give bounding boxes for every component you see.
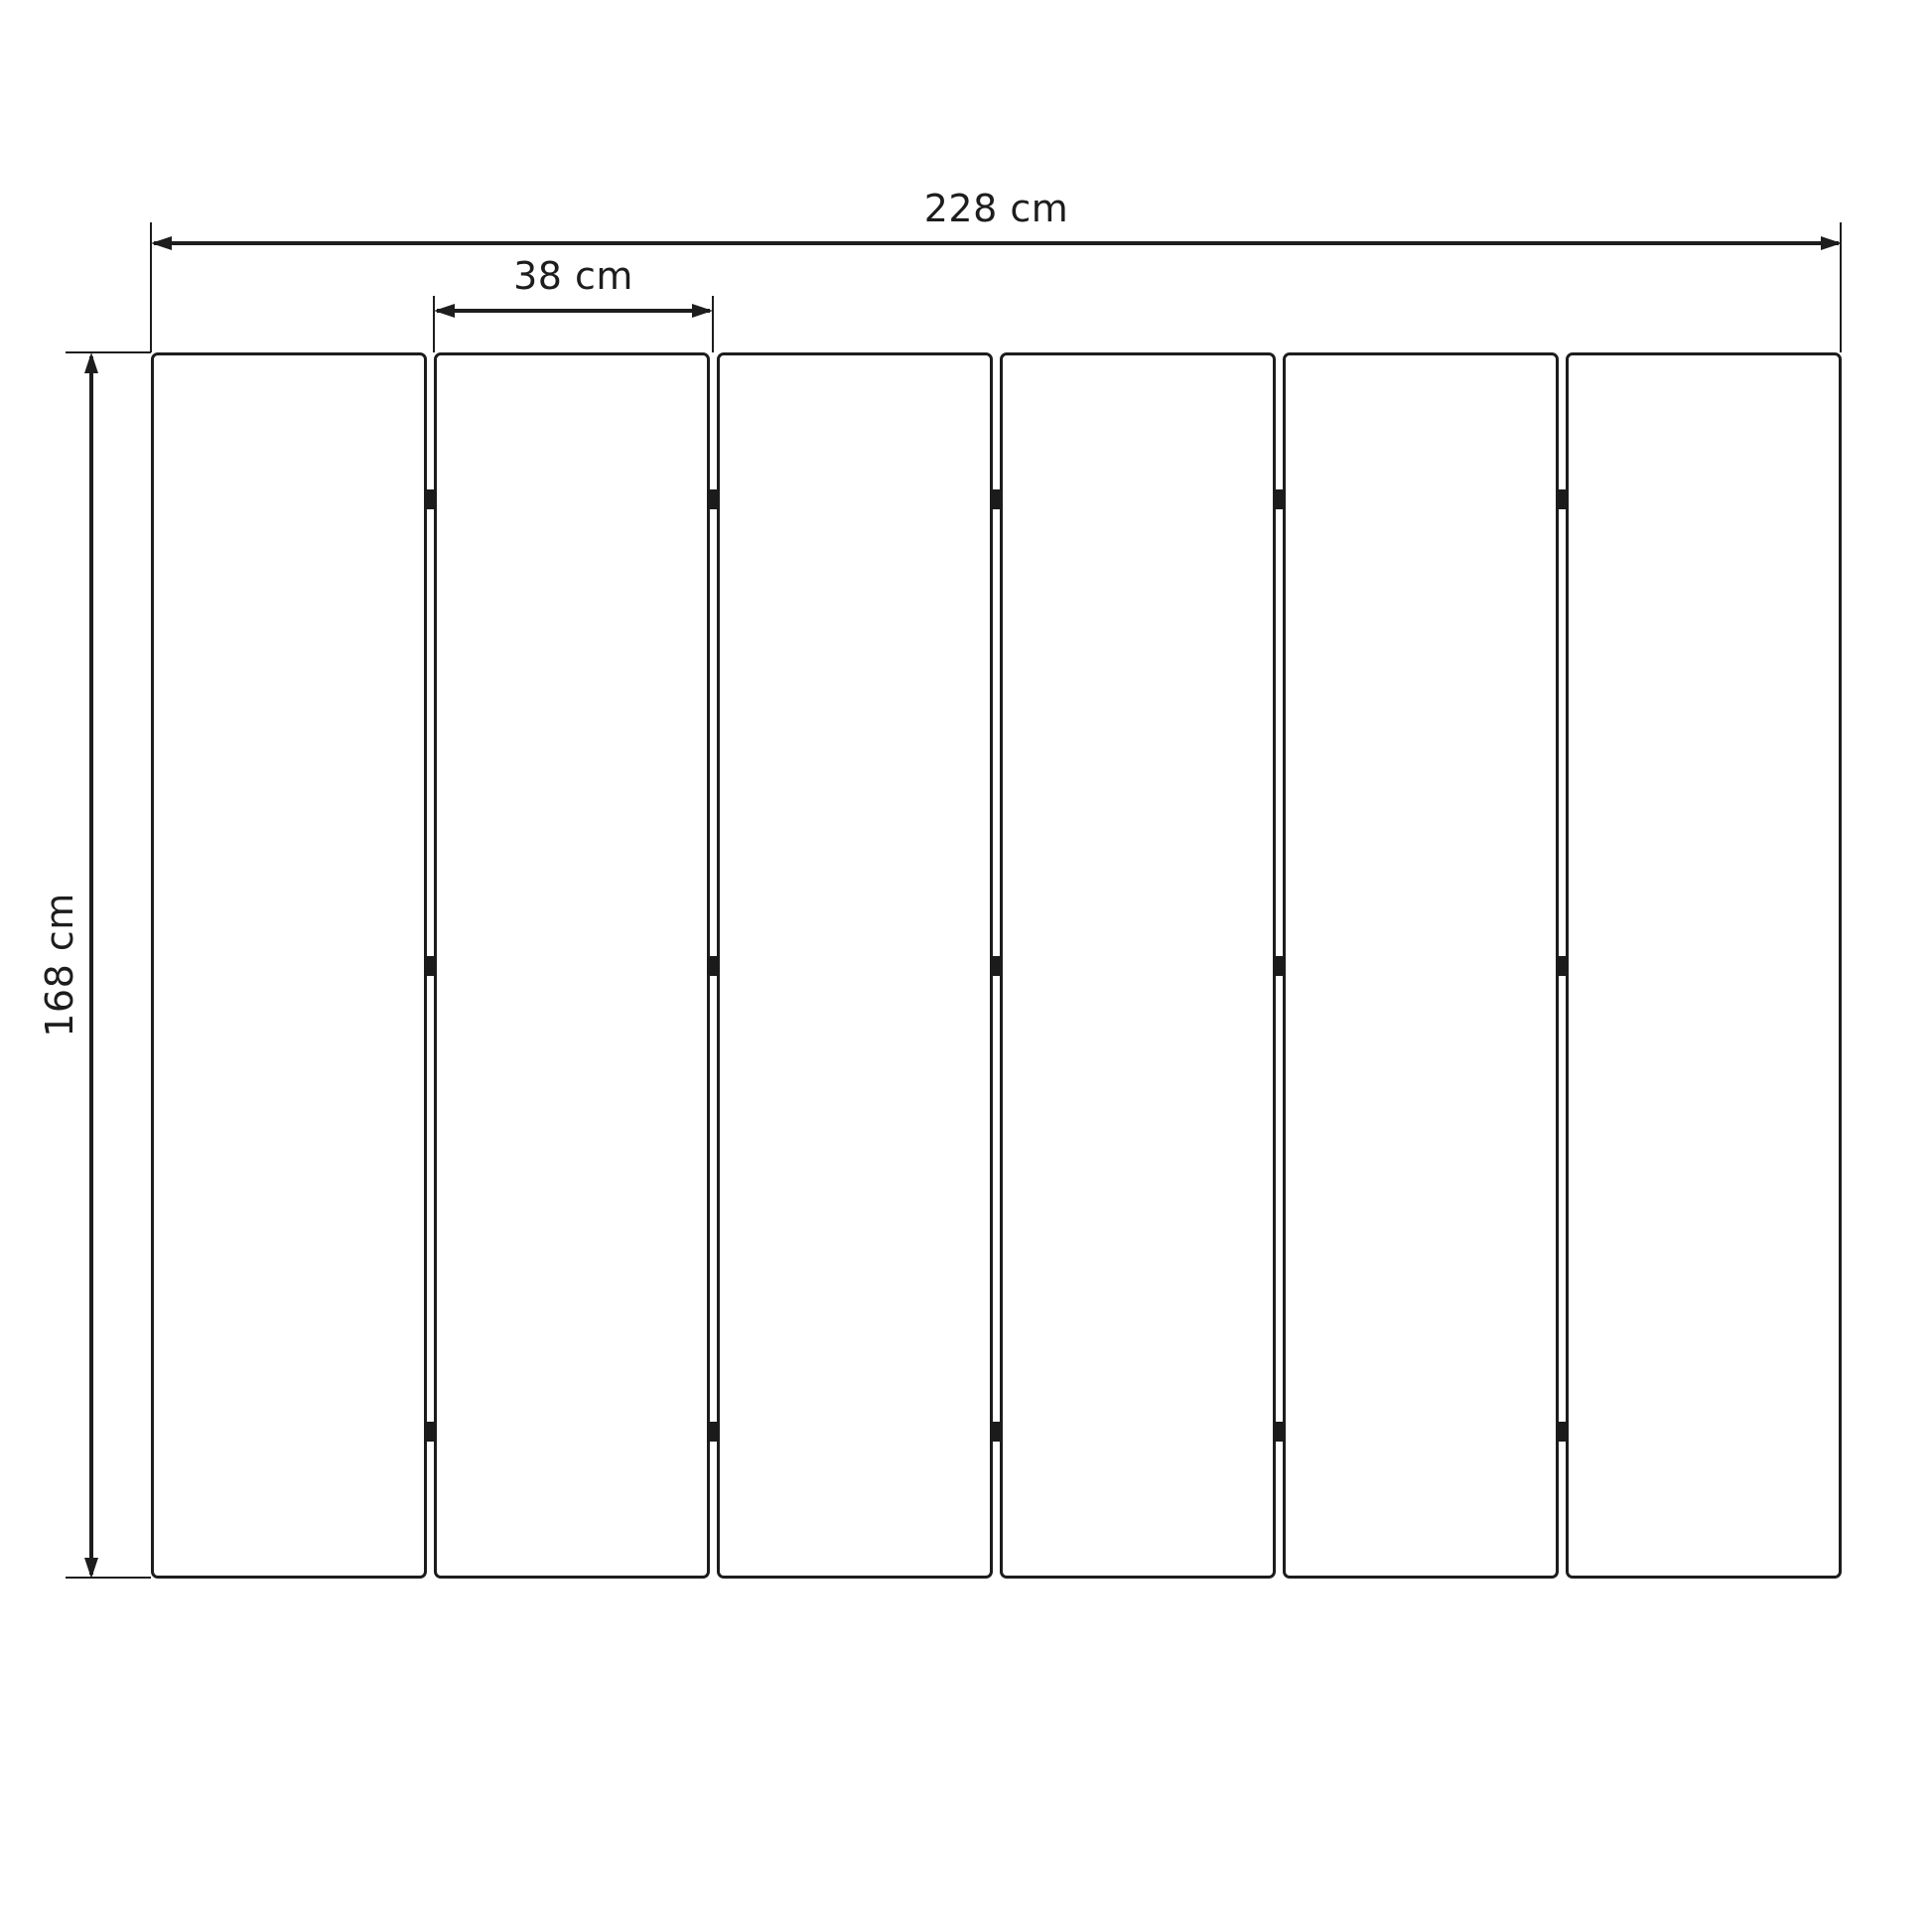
height-extension-line-top	[66, 351, 151, 353]
panel-1	[151, 352, 427, 1579]
panel-width-dimension-label: 38 cm	[434, 254, 713, 298]
total-width-dimension-label: 228 cm	[151, 187, 1842, 230]
hinge-gap4-3	[1274, 1422, 1285, 1442]
total-width-arrow-right-icon	[1821, 236, 1842, 250]
height-arrow-down-icon	[84, 1558, 98, 1579]
total-width-dimension-line	[154, 241, 1839, 245]
hinge-gap5-3	[1557, 1422, 1568, 1442]
hinge-gap1-2	[425, 956, 436, 976]
height-dimension-line	[89, 356, 93, 1575]
hinge-gap1-1	[425, 489, 436, 509]
hinge-gap5-1	[1557, 489, 1568, 509]
height-arrow-up-icon	[84, 352, 98, 373]
panel-2	[434, 352, 710, 1579]
panel-width-arrow-right-icon	[692, 304, 713, 318]
panel-3	[717, 352, 993, 1579]
hinge-gap2-1	[708, 489, 719, 509]
hinge-gap4-1	[1274, 489, 1285, 509]
height-extension-line-bottom	[66, 1577, 151, 1579]
hinge-gap2-3	[708, 1422, 719, 1442]
hinge-gap2-2	[708, 956, 719, 976]
hinge-gap3-2	[991, 956, 1002, 976]
panel-5	[1283, 352, 1559, 1579]
panel-4	[1000, 352, 1276, 1579]
hinge-gap3-1	[991, 489, 1002, 509]
panel-width-dimension-line	[437, 309, 710, 313]
hinge-gap4-2	[1274, 956, 1285, 976]
panel-width-arrow-left-icon	[434, 304, 455, 318]
panel-6	[1566, 352, 1842, 1579]
hinge-gap5-2	[1557, 956, 1568, 976]
hinge-gap1-3	[425, 1422, 436, 1442]
hinge-gap3-3	[991, 1422, 1002, 1442]
dimension-drawing-canvas: 228 cm 38 cm 168 cm	[0, 0, 1932, 1932]
total-width-arrow-left-icon	[151, 236, 172, 250]
